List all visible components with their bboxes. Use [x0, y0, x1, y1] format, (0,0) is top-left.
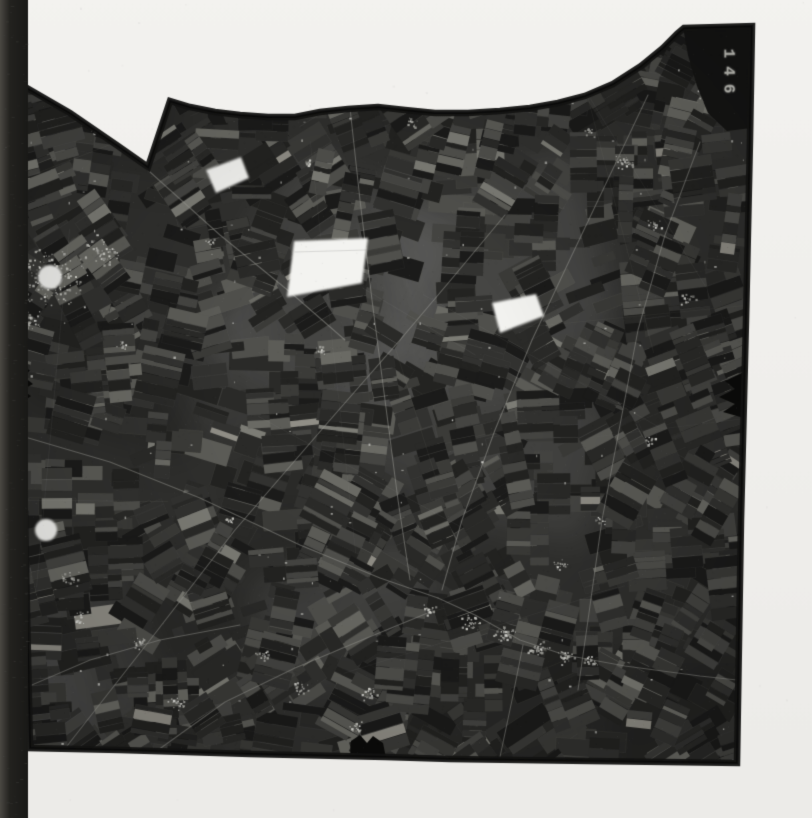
- scanned-aerial-photo-page: 146: [0, 0, 812, 818]
- aerial-photograph: [0, 0, 812, 818]
